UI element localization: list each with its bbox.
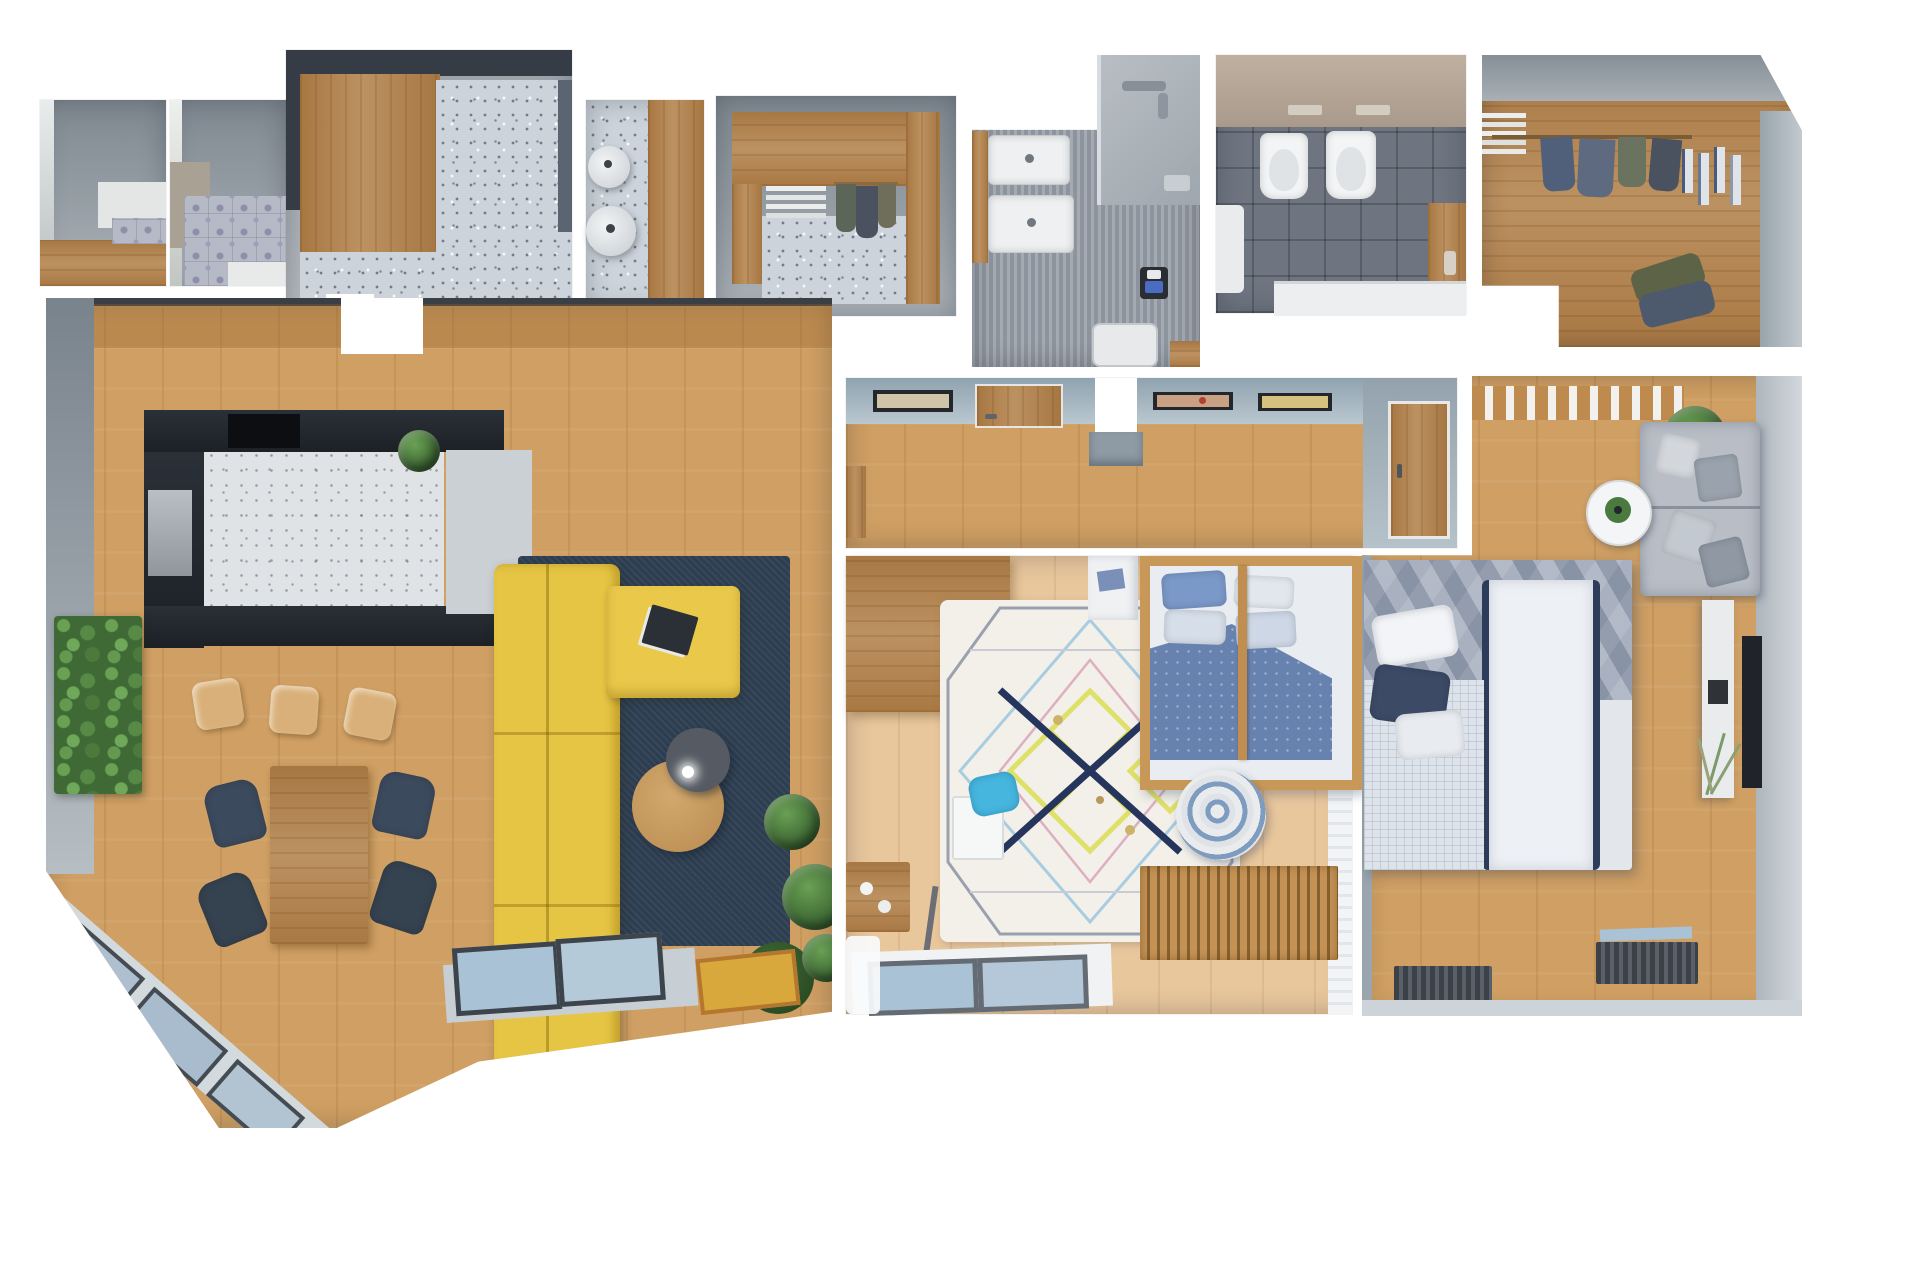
door-opening <box>341 298 423 354</box>
wood-stool <box>1170 341 1200 367</box>
hanging-clothes <box>878 184 896 228</box>
decorative-branches <box>1694 728 1738 802</box>
washbasin <box>1216 205 1244 293</box>
wall-shelf <box>1088 556 1138 620</box>
cup <box>878 900 891 913</box>
shelf-stack <box>766 186 826 191</box>
shower-tray <box>1092 323 1158 367</box>
door-edge <box>846 466 866 538</box>
potted-plant <box>398 430 440 472</box>
room-tile-bath-nook <box>170 100 286 286</box>
floor-grille <box>1596 942 1698 984</box>
door-handle-icon <box>985 414 997 419</box>
wall-top <box>1482 55 1802 101</box>
wood-door <box>1391 404 1447 536</box>
room-bath-toilets <box>1216 55 1466 313</box>
lamp-center <box>604 160 612 168</box>
tv-panel <box>1742 636 1762 788</box>
potted-plant <box>764 794 820 850</box>
canopy-crossbar <box>1238 566 1247 760</box>
toilet <box>1260 133 1308 199</box>
hanging-clothes <box>1618 137 1646 187</box>
decor-sparkle <box>682 766 694 778</box>
side-table <box>666 728 730 792</box>
dining-chair <box>370 769 438 841</box>
bidet-bowl <box>1336 147 1366 191</box>
wall-notch <box>1095 378 1137 438</box>
hanging-clothes <box>1540 136 1576 192</box>
faucet-icon <box>1444 251 1456 275</box>
kitchen-counter-top <box>144 410 504 452</box>
wall-right <box>1756 376 1802 1016</box>
cushion <box>1693 453 1743 503</box>
picture-art <box>877 394 949 408</box>
room-bedroom-child <box>846 556 1352 1014</box>
wood-door <box>977 386 1061 426</box>
shower-fixture-icon <box>1122 81 1166 91</box>
faucet-icon <box>1025 154 1034 163</box>
vertical-garden <box>54 616 142 794</box>
picture-detail <box>1199 397 1206 404</box>
corridor-end-wall <box>1363 378 1457 548</box>
picture-frame <box>1153 392 1233 410</box>
washbasin <box>988 135 1070 185</box>
wood-shelf <box>972 131 988 263</box>
room-hall-strip <box>586 100 704 312</box>
striped-pouf <box>1176 770 1266 860</box>
curtain <box>846 936 880 1014</box>
branch <box>1697 738 1713 793</box>
window-sill <box>1362 1000 1802 1016</box>
wall-top-beige <box>1216 55 1466 127</box>
easel <box>923 886 938 952</box>
table-decor <box>1614 506 1622 514</box>
picture-frame <box>873 390 953 412</box>
closet-cabinet-left <box>732 184 762 284</box>
white-duvet <box>1482 580 1600 870</box>
shelf-stack <box>1482 113 1526 118</box>
pillow <box>1163 609 1226 645</box>
toilet-bowl <box>1269 149 1299 191</box>
sofa-seam <box>494 732 620 735</box>
window <box>977 954 1089 1012</box>
grey-sofa <box>1640 422 1760 596</box>
kitchen-floor <box>204 448 444 610</box>
wall-right <box>1760 111 1802 347</box>
window <box>555 932 665 1007</box>
window <box>40 914 145 1015</box>
bar-stool <box>191 677 246 732</box>
faucet-icon <box>1027 218 1036 227</box>
wood-panel <box>648 100 704 312</box>
belt-rack <box>1682 149 1693 193</box>
room-bath-sinks <box>972 55 1200 367</box>
round-side-table <box>1586 480 1652 546</box>
dining-chair <box>367 857 441 937</box>
window <box>123 987 228 1088</box>
slatted-bench <box>1140 866 1338 960</box>
hanging-clothes <box>1648 138 1682 192</box>
cushion <box>1697 535 1750 588</box>
window-group <box>851 943 1117 1016</box>
toilet-brush-set <box>1140 267 1168 299</box>
potted-plant <box>802 934 850 982</box>
shower-fixture-icon <box>1158 93 1168 119</box>
belt-rack <box>1730 155 1741 205</box>
picture-frame <box>1258 393 1332 411</box>
tile-patch <box>112 218 166 244</box>
dining-table <box>270 766 368 944</box>
wall-pillar <box>1089 432 1143 466</box>
picture-art <box>1157 395 1229 407</box>
washbasin <box>988 195 1074 253</box>
magazine <box>641 604 698 656</box>
window <box>867 958 979 1016</box>
bidet <box>1326 131 1376 199</box>
window <box>206 1059 305 1154</box>
dining-chair <box>201 776 268 849</box>
wall-right <box>558 80 572 232</box>
room-closet <box>716 96 956 316</box>
sofa-seam <box>1640 506 1760 509</box>
door-handle-icon <box>1397 464 1402 478</box>
slatted-wardrobe-top <box>1472 386 1684 420</box>
belt-rack <box>1698 153 1709 205</box>
appliance-front <box>148 490 192 576</box>
white-cabinet <box>228 262 286 286</box>
pillow <box>1161 570 1227 610</box>
floorplan-stage <box>0 0 1912 1275</box>
hanging-clothes <box>856 186 878 238</box>
brush-blue <box>1145 281 1163 293</box>
pendant-lamp-icon <box>586 206 636 256</box>
upper-cabinet-band <box>94 304 832 348</box>
potted-plant <box>782 864 848 930</box>
belt-rack <box>1714 147 1725 193</box>
room-laundry-nook <box>40 100 166 286</box>
room-wardrobe <box>1482 55 1802 347</box>
closet-cabinet-right <box>906 112 940 304</box>
bar-stool <box>268 684 319 735</box>
closet-floor <box>762 216 906 304</box>
dining-chair <box>194 868 271 950</box>
bar-stool <box>342 686 398 742</box>
shelf-art <box>1097 568 1126 591</box>
bathtub <box>1274 281 1466 316</box>
shower-shelf <box>1164 175 1190 191</box>
hanging-clothes <box>1577 138 1616 198</box>
flush-plate <box>1288 105 1322 115</box>
window-group <box>441 925 706 1027</box>
pendant-lamp-icon <box>588 146 630 188</box>
cup <box>860 882 873 895</box>
room-corridor <box>846 378 1457 548</box>
paper-roll <box>1147 270 1161 279</box>
canopy-bed <box>1140 556 1362 790</box>
oven-niche <box>228 414 300 448</box>
window <box>452 941 562 1016</box>
floor-grille <box>1394 966 1492 1002</box>
sofa-chaise <box>606 586 740 698</box>
flush-plate <box>1356 105 1390 115</box>
console-decor <box>1708 680 1728 704</box>
double-bed <box>1364 560 1632 870</box>
room-living <box>46 298 832 1128</box>
shower-glass <box>1097 55 1101 205</box>
entry-wardrobe <box>300 74 440 254</box>
picture-art <box>1262 396 1328 408</box>
wall-top <box>286 50 572 76</box>
wood-floor-strip <box>40 240 166 286</box>
play-table <box>846 862 910 932</box>
pillow <box>1394 709 1466 761</box>
sofa-seam <box>494 904 620 907</box>
window <box>1600 926 1692 941</box>
yellow-doormat <box>695 949 800 1015</box>
hanging-clothes <box>836 184 856 232</box>
lamp-center <box>606 224 615 233</box>
